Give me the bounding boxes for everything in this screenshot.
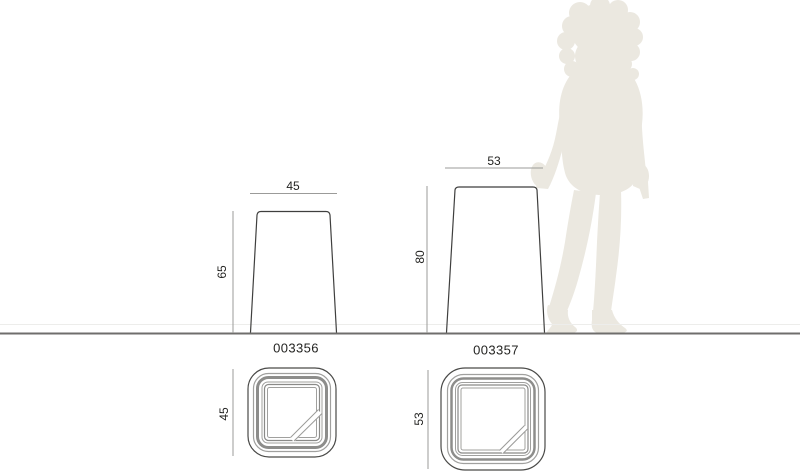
top-view-003356 [233, 368, 336, 457]
topview-size-label-003356: 45 [218, 407, 230, 420]
height-label-003356: 65 [216, 265, 228, 278]
female-silhouette-figure [528, 0, 649, 333]
corner-fold-line [294, 414, 322, 442]
width-label-003356: 45 [286, 180, 299, 192]
dimension-diagram: 45 65 53 80 003356 003357 45 53 [0, 0, 800, 472]
side-view-003356 [233, 194, 337, 334]
corner-fold-line [291, 410, 319, 438]
height-label-003357: 80 [414, 250, 426, 263]
side-view-003357 [427, 168, 545, 333]
product-code-003357: 003357 [473, 344, 519, 357]
width-label-003357: 53 [487, 155, 500, 167]
top-view-003357 [428, 368, 545, 470]
product-code-003356: 003356 [273, 342, 319, 355]
topview-size-label-003357: 53 [413, 412, 425, 425]
technical-drawing [0, 0, 800, 472]
corner-fold-line [500, 426, 525, 451]
